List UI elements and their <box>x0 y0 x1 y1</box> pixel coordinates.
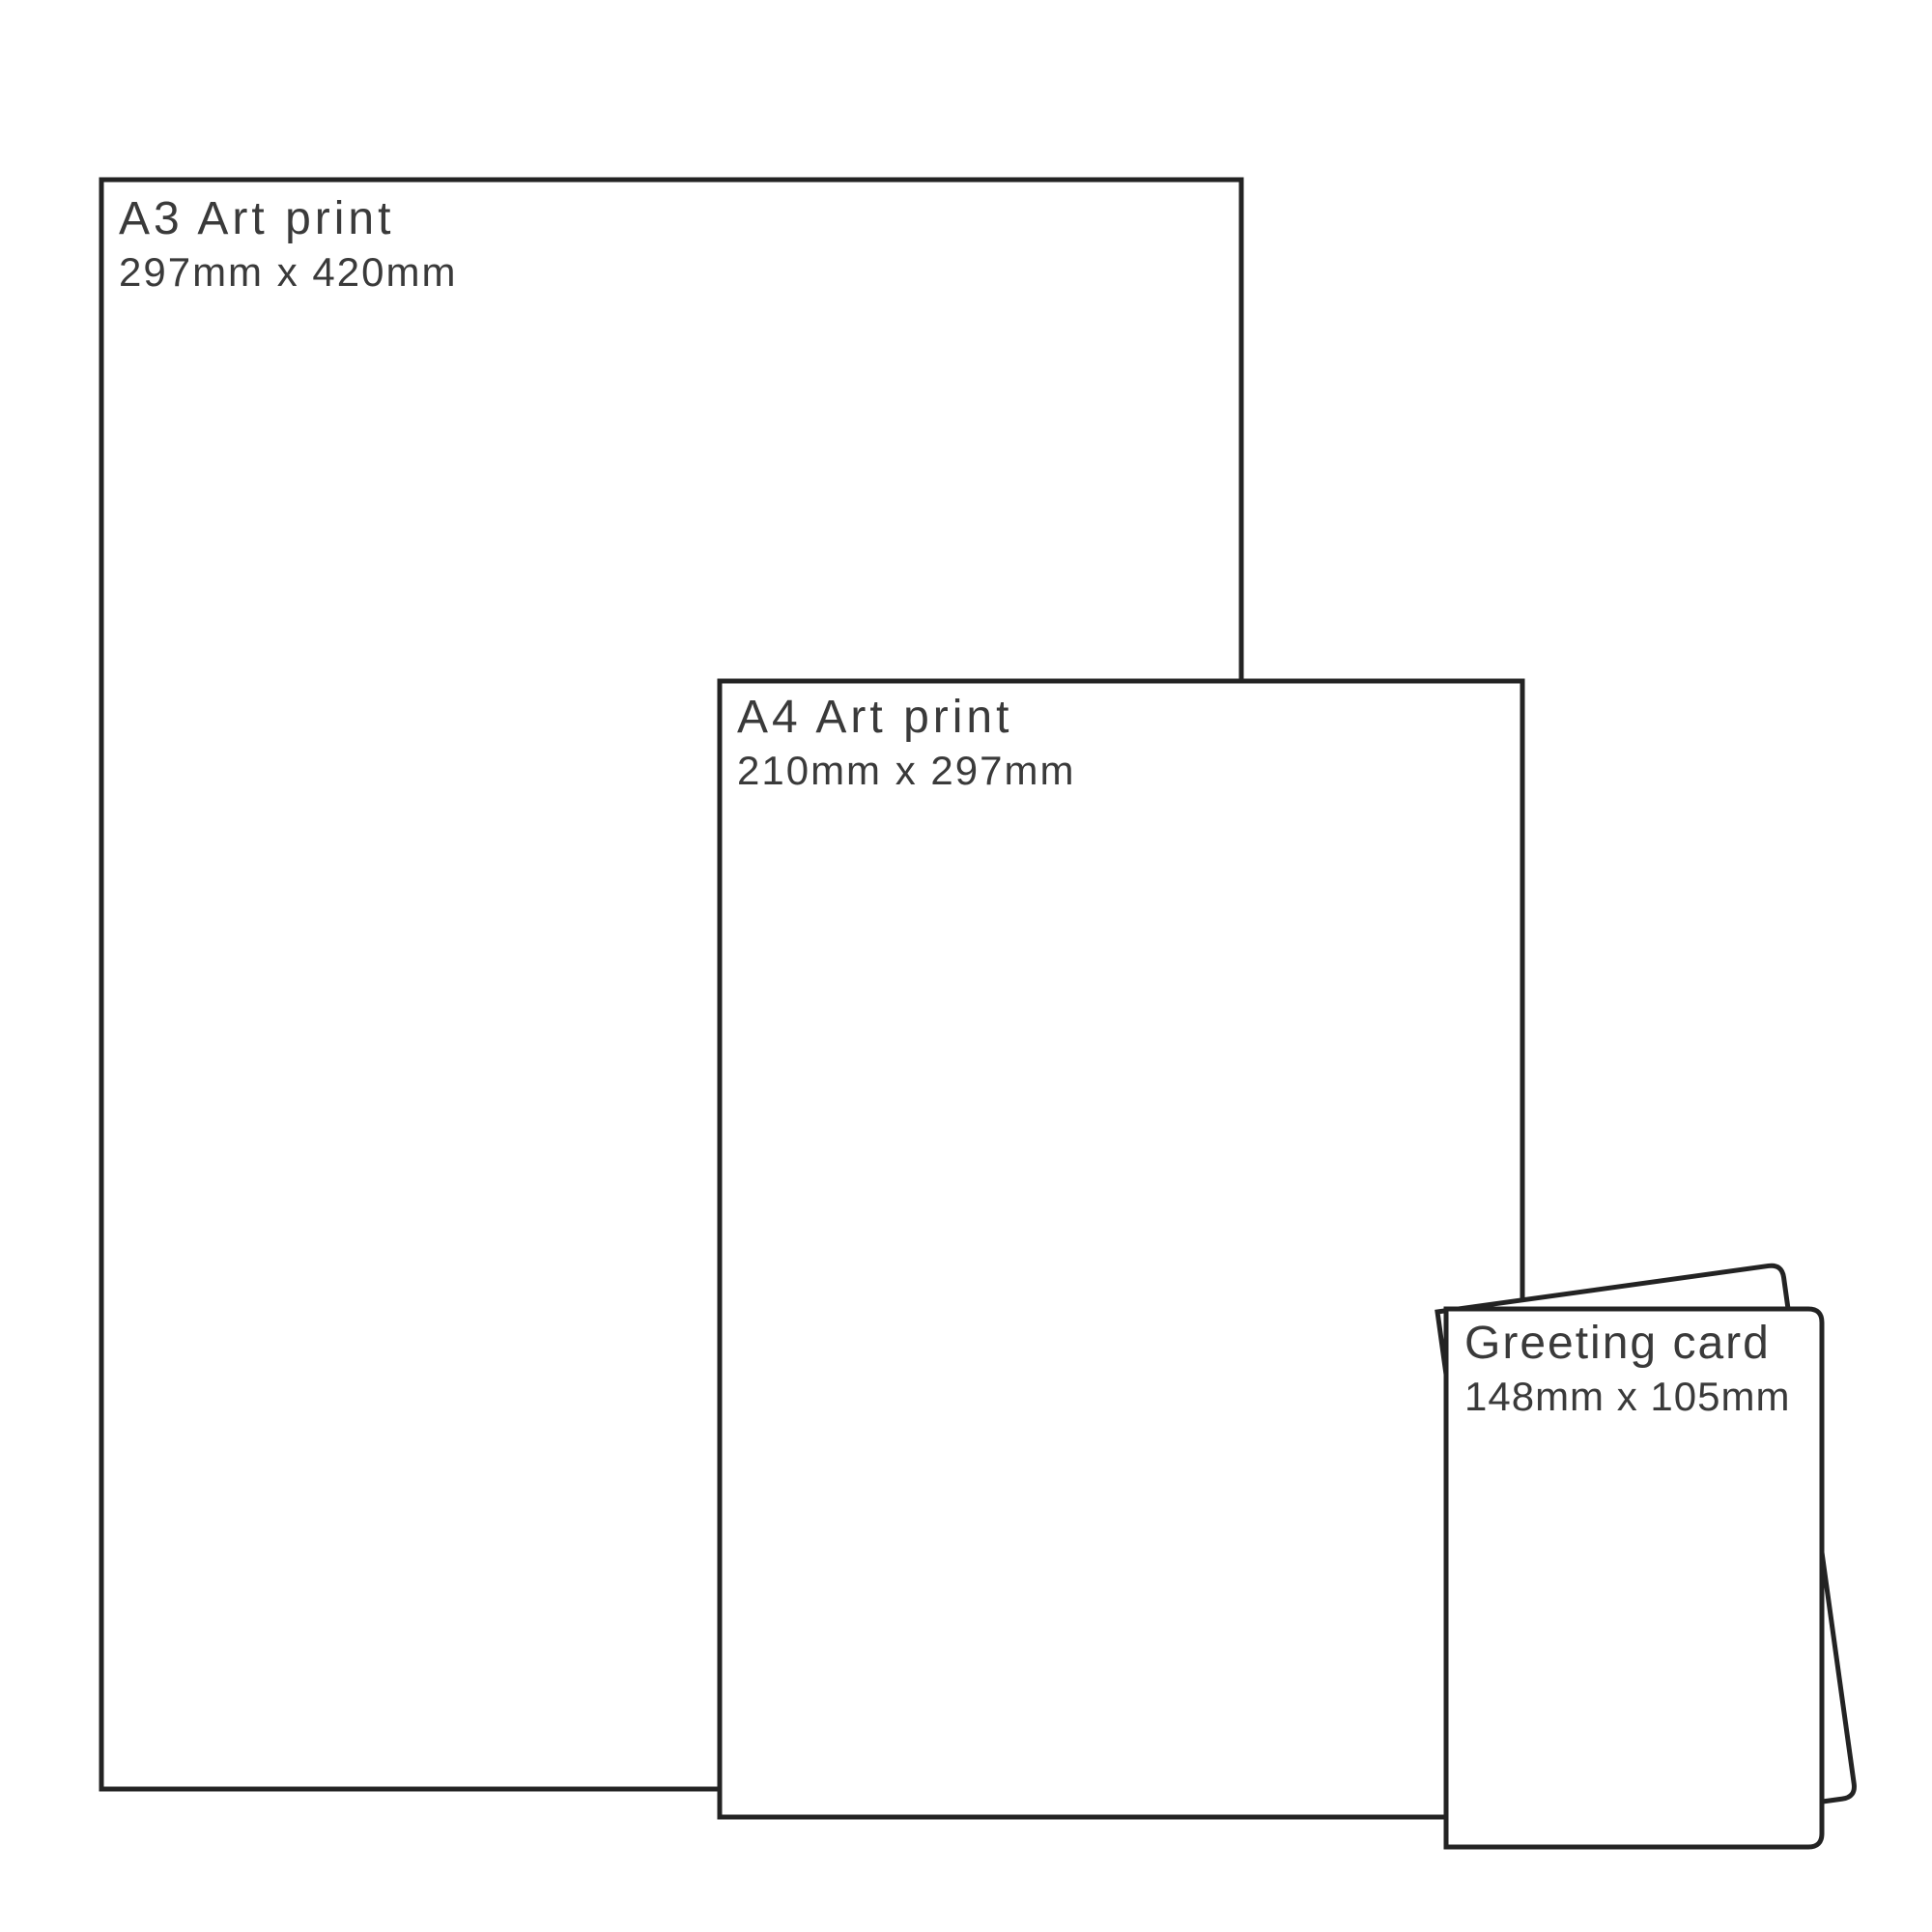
a4-print-label: A4 Art print 210mm x 297mm <box>737 695 1075 791</box>
greeting-card-label: Greeting card 148mm x 105mm <box>1464 1321 1790 1417</box>
print-size-comparison-diagram: A3 Art print 297mm x 420mm A4 Art print … <box>0 0 1932 1932</box>
a3-print-label: A3 Art print 297mm x 420mm <box>119 196 457 293</box>
greeting-card-title: Greeting card <box>1464 1321 1790 1367</box>
a4-print-dimensions: 210mm x 297mm <box>737 751 1075 791</box>
a4-print-outline <box>720 681 1522 1817</box>
a3-print-dimensions: 297mm x 420mm <box>119 252 457 293</box>
a3-print-title: A3 Art print <box>119 196 457 242</box>
greeting-card-dimensions: 148mm x 105mm <box>1464 1377 1790 1417</box>
a4-print-title: A4 Art print <box>737 695 1075 741</box>
